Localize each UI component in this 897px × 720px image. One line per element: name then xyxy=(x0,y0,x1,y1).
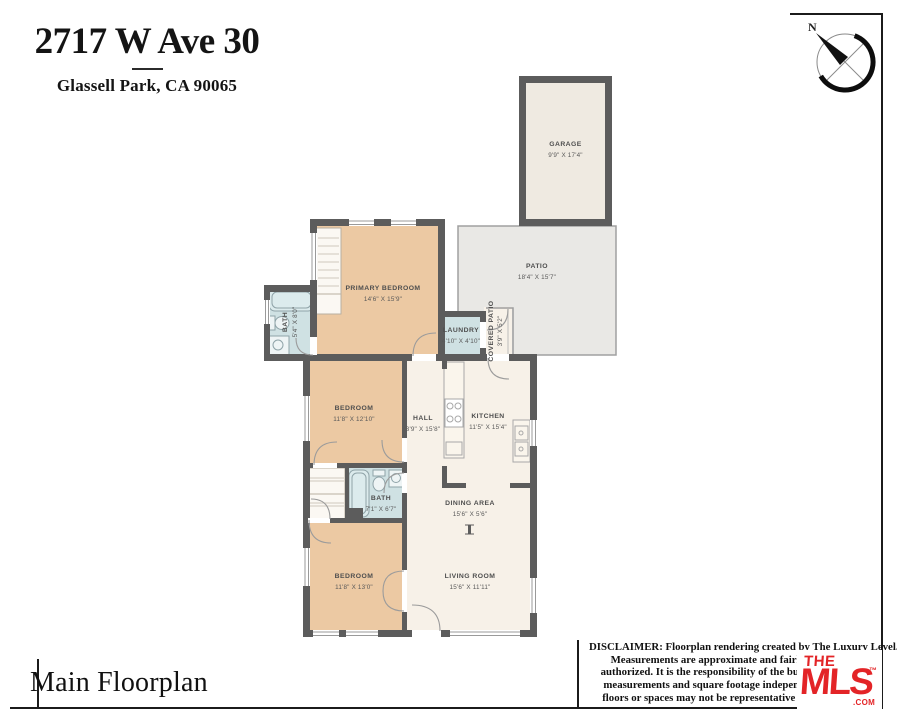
sink-primary xyxy=(269,336,289,355)
kitchen-label: KITCHEN xyxy=(471,413,504,420)
stove xyxy=(445,399,463,427)
primary-bedroom-dims: 14'6" X 15'9" xyxy=(364,296,402,303)
room-hall-kitchen-living xyxy=(405,357,533,633)
garage-label: GARAGE xyxy=(549,141,582,148)
hall-label: HALL xyxy=(413,415,433,422)
laundry-dims: 4'10" X 4'10" xyxy=(442,338,480,345)
primary-closet xyxy=(316,228,341,314)
bedroom-middle-dims: 11'8" X 12'10" xyxy=(333,416,374,423)
bedroom-front-label: BEDROOM xyxy=(335,573,374,580)
floorplan-drawing: GARAGE 9'9" X 17'4" PATIO 18'4" X 15'7" … xyxy=(0,0,897,720)
room-garage xyxy=(526,83,605,219)
room-laundry xyxy=(440,313,484,357)
toilet-hall xyxy=(373,470,385,476)
mls-logo-mls: MLS xyxy=(799,663,874,700)
plan-title: Main Floorplan xyxy=(30,667,208,699)
laundry-label: LAUNDRY xyxy=(443,327,479,334)
patio-dims: 18'4" X 15'7" xyxy=(518,274,556,281)
bath-primary-dims: 5'4" X 8'0" xyxy=(292,307,299,338)
bath-hall-label: BATH xyxy=(371,495,391,502)
garage-dims: 9'9" X 17'4" xyxy=(548,152,582,159)
bath-primary-label: BATH xyxy=(282,312,289,332)
kitchen-dims: 11'5" X 15'4" xyxy=(469,424,507,431)
primary-bedroom-label: PRIMARY BEDROOM xyxy=(345,285,420,292)
patio-label: PATIO xyxy=(526,263,548,270)
footer-divider xyxy=(577,640,579,707)
frame-right xyxy=(881,13,883,709)
dining-area-dims: 15'6" X 5'6" xyxy=(453,511,487,518)
mls-logo: THE MLS ™ .COM xyxy=(797,650,882,709)
floorplan-sheet: 2717 W Ave 30 Glassell Park, CA 90065 N xyxy=(0,0,897,720)
covered-patio-label: COVERED PATIO xyxy=(488,300,495,361)
mls-logo-com: .COM xyxy=(853,698,875,707)
living-room-label: LIVING ROOM xyxy=(445,573,496,580)
bedroom-middle-label: BEDROOM xyxy=(335,405,374,412)
hall-dims: 3'9" X 15'8" xyxy=(406,426,440,433)
mls-logo-tm: ™ xyxy=(869,666,877,675)
bath-hall-dims: 7'1" X 6'7" xyxy=(366,506,397,513)
living-room-dims: 15'6" X 11'11" xyxy=(450,584,491,591)
covered-patio-dims: 3'9" X 5'2" xyxy=(497,316,504,347)
frame-bottom xyxy=(10,707,883,709)
frame-top-right xyxy=(790,13,883,15)
bedroom-front-dims: 11'8" X 13'0" xyxy=(335,584,373,591)
room-bedroom-middle xyxy=(306,357,405,467)
dining-area-label: DINING AREA xyxy=(445,500,495,507)
